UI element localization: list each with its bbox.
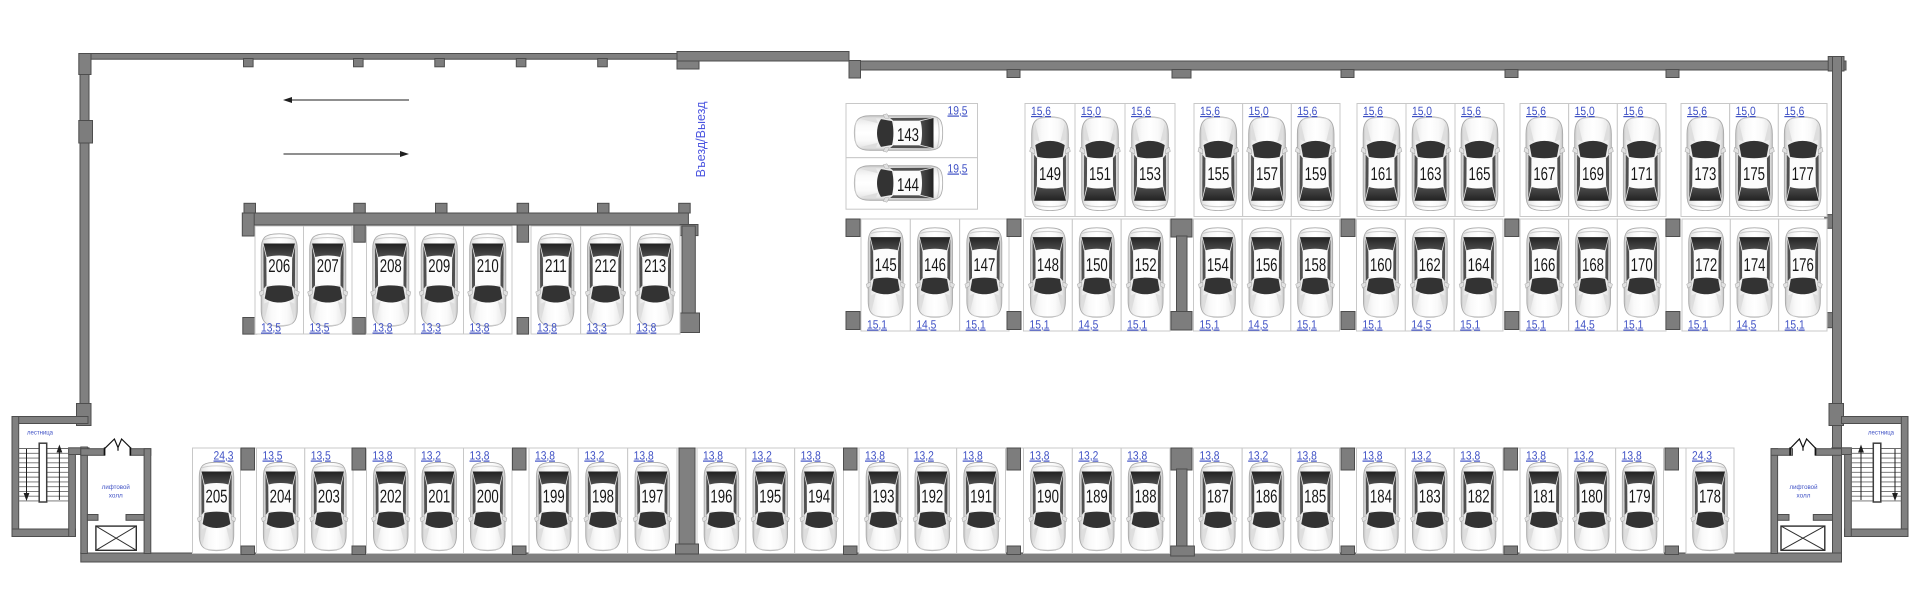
svg-text:146: 146 — [924, 254, 946, 275]
svg-text:13,8: 13,8 — [636, 321, 656, 335]
svg-text:15,0: 15,0 — [1412, 104, 1432, 118]
svg-text:лифтовой: лифтовой — [102, 484, 131, 491]
svg-text:15,6: 15,6 — [1687, 104, 1707, 118]
svg-text:170: 170 — [1631, 254, 1653, 275]
svg-text:14,5: 14,5 — [1078, 318, 1098, 332]
svg-text:169: 169 — [1582, 163, 1604, 184]
svg-text:15,1: 15,1 — [1526, 318, 1546, 332]
svg-text:13,2: 13,2 — [421, 449, 441, 463]
svg-text:145: 145 — [875, 254, 897, 275]
svg-text:13,8: 13,8 — [1030, 449, 1050, 463]
svg-text:15,0: 15,0 — [1736, 104, 1756, 118]
svg-text:197: 197 — [641, 485, 663, 506]
svg-text:181: 181 — [1533, 485, 1555, 506]
svg-text:15,1: 15,1 — [1297, 318, 1317, 332]
svg-text:лестница: лестница — [1868, 430, 1895, 437]
svg-text:158: 158 — [1304, 254, 1326, 275]
svg-text:178: 178 — [1699, 485, 1721, 506]
svg-text:188: 188 — [1135, 485, 1157, 506]
svg-text:195: 195 — [759, 485, 781, 506]
svg-text:182: 182 — [1468, 485, 1490, 506]
svg-text:15,1: 15,1 — [1127, 318, 1147, 332]
svg-text:205: 205 — [206, 485, 228, 506]
svg-text:171: 171 — [1631, 163, 1653, 184]
svg-text:лифтовой: лифтовой — [1790, 484, 1819, 491]
svg-text:13,8: 13,8 — [1363, 449, 1383, 463]
svg-text:13,2: 13,2 — [914, 449, 934, 463]
svg-text:211: 211 — [545, 255, 567, 276]
svg-text:13,8: 13,8 — [801, 449, 821, 463]
svg-text:13,8: 13,8 — [1460, 449, 1480, 463]
svg-text:174: 174 — [1744, 254, 1766, 275]
svg-text:198: 198 — [592, 485, 614, 506]
svg-text:193: 193 — [872, 485, 894, 506]
svg-text:152: 152 — [1135, 254, 1157, 275]
svg-text:194: 194 — [808, 485, 830, 506]
svg-text:168: 168 — [1582, 254, 1604, 275]
svg-text:201: 201 — [428, 485, 450, 506]
svg-text:172: 172 — [1695, 254, 1717, 275]
svg-text:189: 189 — [1086, 485, 1108, 506]
svg-text:15,1: 15,1 — [1623, 318, 1643, 332]
svg-text:холл: холл — [1797, 493, 1811, 500]
svg-text:15,1: 15,1 — [1200, 318, 1220, 332]
svg-text:15,6: 15,6 — [1131, 104, 1151, 118]
svg-text:13,8: 13,8 — [373, 449, 393, 463]
svg-text:183: 183 — [1419, 485, 1441, 506]
svg-text:15,6: 15,6 — [1623, 104, 1643, 118]
svg-text:холл: холл — [109, 493, 123, 500]
svg-text:157: 157 — [1256, 163, 1278, 184]
svg-text:179: 179 — [1629, 485, 1651, 506]
svg-text:лестница: лестница — [27, 430, 54, 437]
svg-text:190: 190 — [1037, 485, 1059, 506]
svg-text:13,2: 13,2 — [1574, 449, 1594, 463]
svg-text:203: 203 — [318, 485, 340, 506]
svg-text:Въезд/Выезд: Въезд/Выезд — [694, 101, 708, 178]
svg-text:13,5: 13,5 — [263, 449, 283, 463]
svg-text:204: 204 — [270, 485, 292, 506]
svg-text:13,8: 13,8 — [865, 449, 885, 463]
svg-text:191: 191 — [970, 485, 992, 506]
svg-text:207: 207 — [317, 255, 339, 276]
svg-text:13,8: 13,8 — [1622, 449, 1642, 463]
svg-text:209: 209 — [428, 255, 450, 276]
svg-text:15,0: 15,0 — [1081, 104, 1101, 118]
svg-text:165: 165 — [1469, 163, 1491, 184]
svg-text:13,8: 13,8 — [470, 449, 490, 463]
svg-text:13,8: 13,8 — [1127, 449, 1147, 463]
svg-text:15,6: 15,6 — [1031, 104, 1051, 118]
svg-text:149: 149 — [1039, 163, 1061, 184]
svg-text:13,5: 13,5 — [261, 321, 281, 335]
svg-text:176: 176 — [1792, 254, 1814, 275]
svg-text:200: 200 — [477, 485, 499, 506]
svg-text:13,2: 13,2 — [1248, 449, 1268, 463]
svg-text:13,8: 13,8 — [1297, 449, 1317, 463]
svg-text:15,6: 15,6 — [1363, 104, 1383, 118]
svg-text:206: 206 — [268, 255, 290, 276]
svg-text:15,1: 15,1 — [1030, 318, 1050, 332]
svg-text:15,1: 15,1 — [867, 318, 887, 332]
svg-text:14,5: 14,5 — [1575, 318, 1595, 332]
svg-text:186: 186 — [1256, 485, 1278, 506]
svg-text:199: 199 — [543, 485, 565, 506]
svg-text:147: 147 — [973, 254, 995, 275]
svg-text:213: 213 — [644, 255, 666, 276]
svg-text:202: 202 — [380, 485, 402, 506]
svg-text:212: 212 — [595, 255, 617, 276]
svg-text:13,8: 13,8 — [963, 449, 983, 463]
svg-text:153: 153 — [1139, 163, 1161, 184]
svg-text:151: 151 — [1089, 163, 1111, 184]
svg-text:187: 187 — [1207, 485, 1229, 506]
svg-text:148: 148 — [1037, 254, 1059, 275]
svg-text:13,8: 13,8 — [703, 449, 723, 463]
svg-text:15,1: 15,1 — [1785, 318, 1805, 332]
svg-text:159: 159 — [1305, 163, 1327, 184]
svg-text:154: 154 — [1207, 254, 1229, 275]
svg-text:13,5: 13,5 — [311, 449, 331, 463]
svg-text:185: 185 — [1304, 485, 1326, 506]
svg-text:143: 143 — [897, 124, 919, 145]
svg-text:13,3: 13,3 — [587, 321, 607, 335]
svg-text:15,1: 15,1 — [1363, 318, 1383, 332]
svg-text:15,6: 15,6 — [1526, 104, 1546, 118]
svg-text:15,0: 15,0 — [1575, 104, 1595, 118]
svg-text:24,3: 24,3 — [1692, 449, 1712, 463]
svg-text:144: 144 — [897, 174, 919, 195]
svg-text:210: 210 — [477, 255, 499, 276]
svg-text:196: 196 — [710, 485, 732, 506]
svg-text:167: 167 — [1533, 163, 1555, 184]
svg-text:13,8: 13,8 — [1526, 449, 1546, 463]
svg-text:13,8: 13,8 — [634, 449, 654, 463]
svg-text:13,8: 13,8 — [537, 321, 557, 335]
svg-text:13,2: 13,2 — [752, 449, 772, 463]
svg-text:13,3: 13,3 — [421, 321, 441, 335]
svg-text:162: 162 — [1419, 254, 1441, 275]
svg-text:14,5: 14,5 — [1411, 318, 1431, 332]
svg-text:173: 173 — [1694, 163, 1716, 184]
svg-text:164: 164 — [1468, 254, 1490, 275]
svg-text:15,6: 15,6 — [1784, 104, 1804, 118]
svg-text:13,2: 13,2 — [584, 449, 604, 463]
svg-text:192: 192 — [921, 485, 943, 506]
svg-text:180: 180 — [1581, 485, 1603, 506]
svg-text:156: 156 — [1256, 254, 1278, 275]
svg-text:14,5: 14,5 — [1248, 318, 1268, 332]
svg-text:161: 161 — [1371, 163, 1393, 184]
svg-text:160: 160 — [1370, 254, 1392, 275]
svg-text:177: 177 — [1792, 163, 1814, 184]
svg-text:166: 166 — [1533, 254, 1555, 275]
svg-text:13,2: 13,2 — [1411, 449, 1431, 463]
svg-text:19,5: 19,5 — [948, 162, 968, 176]
svg-text:13,2: 13,2 — [1078, 449, 1098, 463]
svg-text:15,6: 15,6 — [1297, 104, 1317, 118]
svg-text:14,5: 14,5 — [1736, 318, 1756, 332]
svg-text:19,5: 19,5 — [948, 104, 968, 118]
svg-text:208: 208 — [380, 255, 402, 276]
svg-text:15,1: 15,1 — [966, 318, 986, 332]
svg-text:14,5: 14,5 — [916, 318, 936, 332]
svg-text:13,8: 13,8 — [373, 321, 393, 335]
svg-text:184: 184 — [1370, 485, 1392, 506]
svg-text:163: 163 — [1420, 163, 1442, 184]
svg-text:13,8: 13,8 — [1200, 449, 1220, 463]
svg-text:24,3: 24,3 — [214, 449, 234, 463]
svg-text:15,1: 15,1 — [1688, 318, 1708, 332]
svg-text:15,1: 15,1 — [1460, 318, 1480, 332]
svg-text:15,6: 15,6 — [1200, 104, 1220, 118]
svg-text:13,8: 13,8 — [535, 449, 555, 463]
svg-text:155: 155 — [1207, 163, 1229, 184]
svg-text:150: 150 — [1086, 254, 1108, 275]
svg-text:15,0: 15,0 — [1249, 104, 1269, 118]
svg-text:175: 175 — [1743, 163, 1765, 184]
svg-text:15,6: 15,6 — [1461, 104, 1481, 118]
svg-text:13,5: 13,5 — [310, 321, 330, 335]
svg-text:13,8: 13,8 — [470, 321, 490, 335]
